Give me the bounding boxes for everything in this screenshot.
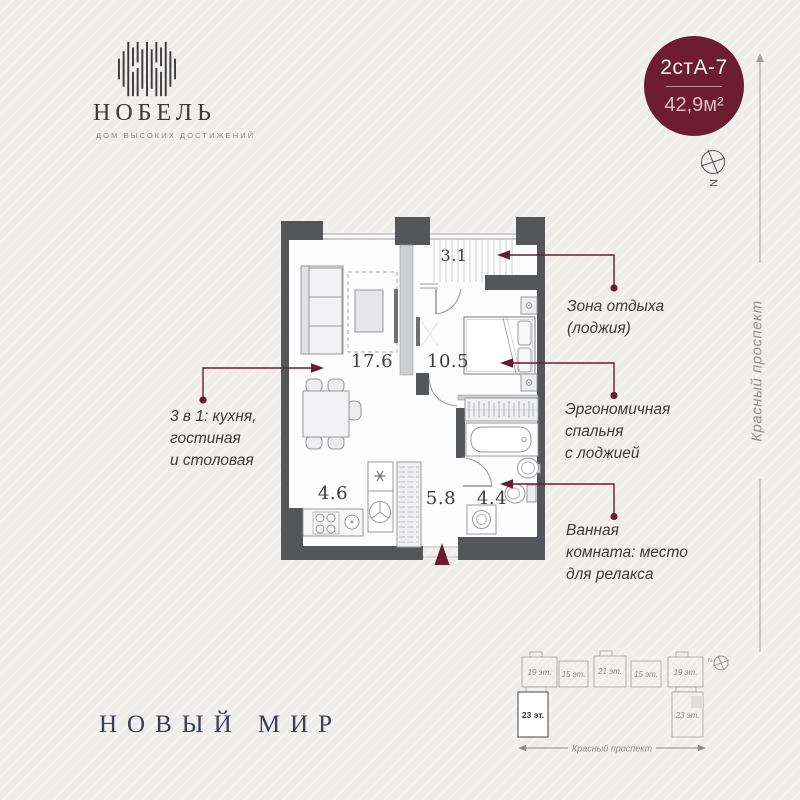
site-street-label: Красный проспект xyxy=(572,744,653,754)
annotation-bedroom: Эргономичная спальня с лоджией xyxy=(565,399,670,465)
site-block-4-label: 15 эт. xyxy=(634,670,658,679)
site-block-2-label: 15 эт. xyxy=(562,670,586,679)
room-area-kitchen: 4.6 xyxy=(313,483,353,504)
room-area-living: 17.6 xyxy=(351,351,391,372)
footer-brand: НОВЫЙ МИР xyxy=(99,711,342,739)
site-plan: 19 эт. 15 эт. 21 эт. 15 эт. 19 эт. 23 эт… xyxy=(505,645,740,760)
site-tower-right-label: 23 эт. xyxy=(675,711,700,720)
kitchen-tall-unit xyxy=(368,462,393,532)
site-block-1-label: 19 эт. xyxy=(528,668,552,677)
room-area-bathroom: 4.4 xyxy=(472,488,512,509)
tv-bedroom xyxy=(416,317,420,346)
kitchen-counter xyxy=(303,509,363,536)
site-connector-left xyxy=(526,687,546,692)
annotation-loggia: Зона отдыха (лоджия) xyxy=(567,296,664,340)
entrance-arrow-icon xyxy=(428,543,456,565)
hall-closet xyxy=(397,462,421,547)
site-connector-right xyxy=(676,687,696,692)
site-block-3-label: 21 эт. xyxy=(597,667,622,676)
wardrobe xyxy=(465,398,538,421)
sofa xyxy=(301,266,343,354)
room-area-bedroom: 10.5 xyxy=(427,351,467,372)
street-name-vertical: Красный проспект xyxy=(749,300,766,442)
site-block-5-label: 19 эт. xyxy=(674,668,698,677)
bed xyxy=(464,317,535,374)
room-area-hallway: 5.8 xyxy=(421,488,461,509)
washing-machine xyxy=(467,505,496,534)
bathtub xyxy=(466,423,538,456)
coffee-table xyxy=(355,290,383,332)
site-compass-icon: N xyxy=(708,656,729,670)
annotation-bathroom: Ванная комната: место для релакса xyxy=(566,520,688,586)
annotation-kitchen: 3 в 1: кухня, гостиная и столовая xyxy=(170,406,257,472)
floor-plan xyxy=(275,205,555,565)
floorplan-page: НОБЕЛЬ дом высоких достижений 2стА-7 42,… xyxy=(0,0,800,800)
tv-living xyxy=(394,289,398,343)
svg-text:N: N xyxy=(708,658,712,664)
room-area-loggia: 3.1 xyxy=(434,246,474,265)
site-tower-left-label: 23 эт. xyxy=(522,710,544,720)
site-tower-right-annex xyxy=(691,696,703,708)
